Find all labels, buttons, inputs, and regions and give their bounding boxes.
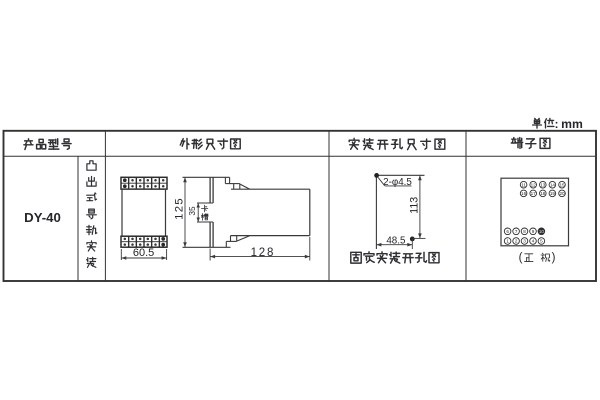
svg-text:7: 7: [515, 229, 518, 234]
svg-text:DY-40: DY-40: [24, 210, 61, 225]
svg-text:9: 9: [532, 229, 535, 234]
svg-text:11: 11: [521, 182, 526, 187]
svg-text:48.5: 48.5: [386, 236, 406, 247]
svg-text:10: 10: [539, 229, 545, 234]
svg-text:mm: mm: [561, 117, 583, 131]
svg-text:19: 19: [550, 191, 556, 196]
svg-text:3: 3: [523, 239, 526, 244]
svg-text:6: 6: [506, 229, 509, 234]
svg-text:(: (: [519, 252, 523, 264]
svg-text:8: 8: [523, 229, 526, 234]
svg-text:2: 2: [515, 239, 518, 244]
svg-text:20: 20: [559, 191, 565, 196]
svg-text:): ): [552, 252, 556, 264]
svg-text:35: 35: [187, 206, 197, 216]
svg-text:1: 1: [506, 239, 509, 244]
svg-text:15: 15: [559, 182, 565, 187]
svg-text:16: 16: [521, 191, 527, 196]
svg-text:60.5: 60.5: [133, 247, 154, 259]
svg-text:5: 5: [540, 239, 543, 244]
svg-text:13: 13: [540, 182, 546, 187]
svg-text:125: 125: [173, 197, 185, 220]
svg-text:12: 12: [531, 182, 537, 187]
svg-text:2-φ4.5: 2-φ4.5: [383, 177, 412, 188]
svg-text::: :: [555, 119, 559, 131]
svg-text:17: 17: [531, 191, 537, 196]
svg-text:14: 14: [550, 182, 556, 187]
svg-text:113: 113: [408, 197, 420, 214]
svg-text:4: 4: [532, 239, 535, 244]
svg-text:18: 18: [540, 191, 546, 196]
svg-text:128: 128: [251, 247, 276, 259]
